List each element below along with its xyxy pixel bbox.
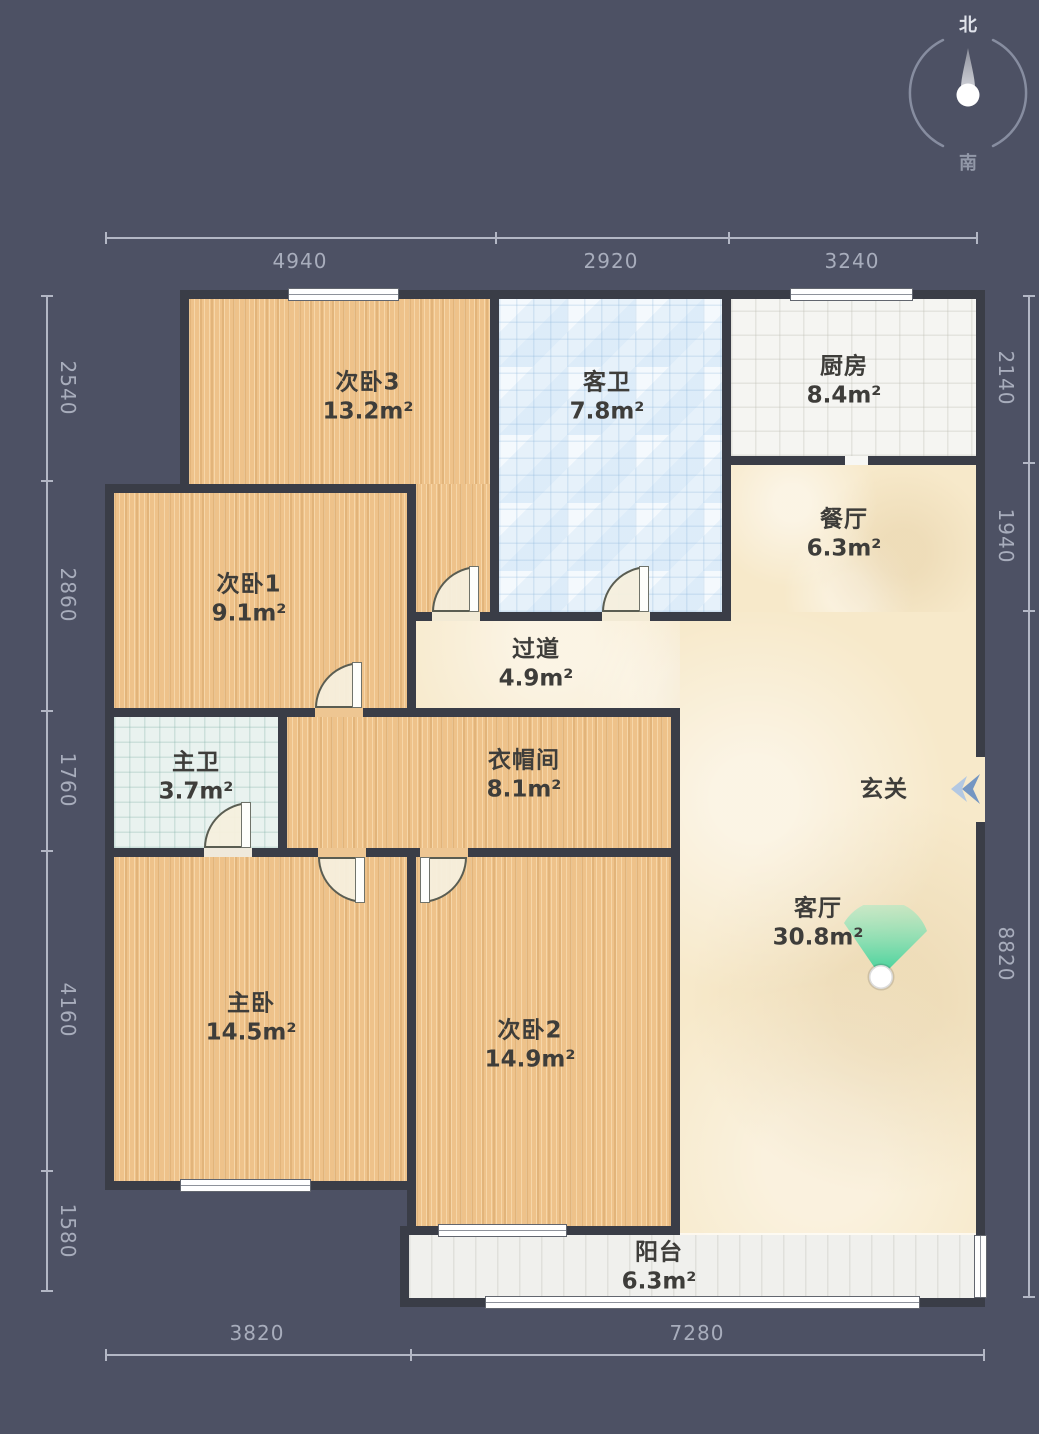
dim-tick (41, 295, 53, 297)
wall (407, 484, 416, 717)
wall (671, 717, 680, 1235)
door-opening (318, 848, 366, 857)
kitchen-pass-opening (845, 456, 868, 465)
room-label-balcony: 阳台 6.3m² (622, 1238, 697, 1296)
door-opening (204, 848, 252, 857)
wall (490, 290, 499, 621)
room-area: 8.4m² (807, 381, 882, 410)
room-area: 14.9m² (485, 1045, 576, 1074)
room-name: 次卧2 (485, 1016, 576, 1045)
dim-tick (1023, 610, 1035, 612)
dim-label-top: 4940 (273, 249, 328, 273)
room-label-master-bath: 主卫 3.7m² (159, 748, 234, 806)
door-leaf-master-bedroom (355, 857, 365, 903)
living-balcony-threshold (680, 1233, 976, 1235)
dim-tick (983, 1349, 985, 1361)
room-label-master-bedroom: 主卧 14.5m² (206, 989, 297, 1047)
room-area: 6.3m² (622, 1267, 697, 1296)
room-name: 衣帽间 (487, 746, 562, 775)
room-name: 厨房 (807, 352, 882, 381)
dim-label-right: 8820 (994, 927, 1018, 982)
wall (976, 822, 985, 1235)
dimension-line-left (46, 295, 48, 1292)
room-area: 8.1m² (487, 775, 562, 804)
room-area: 9.1m² (212, 599, 287, 628)
room-label-entry: 玄关 (860, 776, 908, 805)
dim-tick (105, 232, 107, 244)
window (288, 288, 399, 301)
dim-tick (41, 1290, 53, 1292)
dim-label-bottom: 7280 (670, 1321, 725, 1345)
dim-label-top: 2920 (584, 249, 639, 273)
room-area: 13.2m² (323, 397, 414, 426)
dim-tick (41, 1170, 53, 1172)
room-name: 主卧 (206, 989, 297, 1018)
dim-tick (1023, 295, 1035, 297)
room-area: 6.3m² (807, 534, 882, 563)
room-label-bedroom1: 次卧1 9.1m² (212, 570, 287, 628)
room-area: 4.9m² (499, 664, 574, 693)
dim-tick (495, 232, 497, 244)
wall (722, 290, 731, 621)
dim-label-right: 1940 (994, 509, 1018, 564)
door-leaf-bedroom1 (352, 662, 362, 708)
dim-label-bottom: 3820 (230, 1321, 285, 1345)
door-opening (420, 848, 468, 857)
door-leaf-bedroom2 (420, 857, 430, 903)
dim-label-left: 1580 (56, 1204, 80, 1259)
compass-south-label: 南 (959, 149, 977, 175)
wall (278, 717, 287, 848)
door-opening (432, 612, 480, 621)
room-label-hallway: 过道 4.9m² (499, 635, 574, 693)
wall (180, 290, 189, 493)
room-label-dining: 餐厅 6.3m² (807, 505, 882, 563)
wall (105, 484, 416, 493)
wall (105, 484, 114, 1190)
door-opening (315, 708, 363, 717)
room-name: 过道 (499, 635, 574, 664)
dim-tick (1023, 462, 1035, 464)
room-label-kitchen: 厨房 8.4m² (807, 352, 882, 410)
dim-label-left: 2540 (56, 361, 80, 416)
room-label-living: 客厅 30.8m² (773, 894, 864, 952)
compass-north-label: 北 (959, 11, 977, 37)
entry-direction-icon (948, 772, 982, 806)
door-opening (602, 612, 650, 621)
dim-tick (41, 710, 53, 712)
wall (407, 848, 416, 1235)
room-name: 阳台 (622, 1238, 697, 1267)
room-name: 次卧3 (323, 368, 414, 397)
dim-tick (410, 1349, 412, 1361)
door-leaf-guest-bath (639, 566, 649, 612)
floorplan-canvas: 次卧3 13.2m² 客卫 7.8m² 厨房 8.4m² 餐厅 6.3m² 次卧… (0, 0, 1039, 1434)
dim-label-top: 3240 (825, 249, 880, 273)
dim-label-left: 1760 (56, 753, 80, 808)
dim-tick (105, 1349, 107, 1361)
room-area: 3.7m² (159, 777, 234, 806)
dim-tick (41, 850, 53, 852)
room-label-closet: 衣帽间 8.1m² (487, 746, 562, 804)
dimension-line-right (1028, 295, 1030, 1298)
room-floor-guest-bath (499, 299, 722, 612)
room-area: 7.8m² (570, 397, 645, 426)
dim-tick (41, 480, 53, 482)
dim-label-left: 4160 (56, 983, 80, 1038)
dim-tick (976, 232, 978, 244)
room-label-guest-bath: 客卫 7.8m² (570, 368, 645, 426)
balcony-side-window (974, 1235, 987, 1298)
wall (400, 1226, 409, 1307)
room-area: 14.5m² (206, 1018, 297, 1047)
window (438, 1224, 567, 1237)
room-name: 次卧1 (212, 570, 287, 599)
room-area: 30.8m² (773, 923, 864, 952)
door-leaf-bedroom3 (469, 566, 479, 612)
room-label-bedroom3: 次卧3 13.2m² (323, 368, 414, 426)
room-name: 主卫 (159, 748, 234, 777)
room-name: 餐厅 (807, 505, 882, 534)
dim-label-left: 2860 (56, 568, 80, 623)
room-label-bedroom2: 次卧2 14.9m² (485, 1016, 576, 1074)
balcony-window (485, 1296, 920, 1309)
window (790, 288, 913, 301)
dim-tick (1023, 1296, 1035, 1298)
room-floor-closet (287, 717, 671, 848)
window (180, 1179, 311, 1192)
dimension-line-top (105, 237, 978, 239)
dimension-line-bottom (105, 1354, 985, 1356)
dim-label-right: 2140 (994, 351, 1018, 406)
room-name: 客厅 (773, 894, 864, 923)
wall (105, 848, 680, 857)
wall (105, 708, 680, 717)
dim-tick (728, 232, 730, 244)
door-leaf-master-bath (241, 802, 251, 848)
room-name: 客卫 (570, 368, 645, 397)
room-name: 玄关 (860, 776, 908, 805)
wall (976, 290, 985, 757)
